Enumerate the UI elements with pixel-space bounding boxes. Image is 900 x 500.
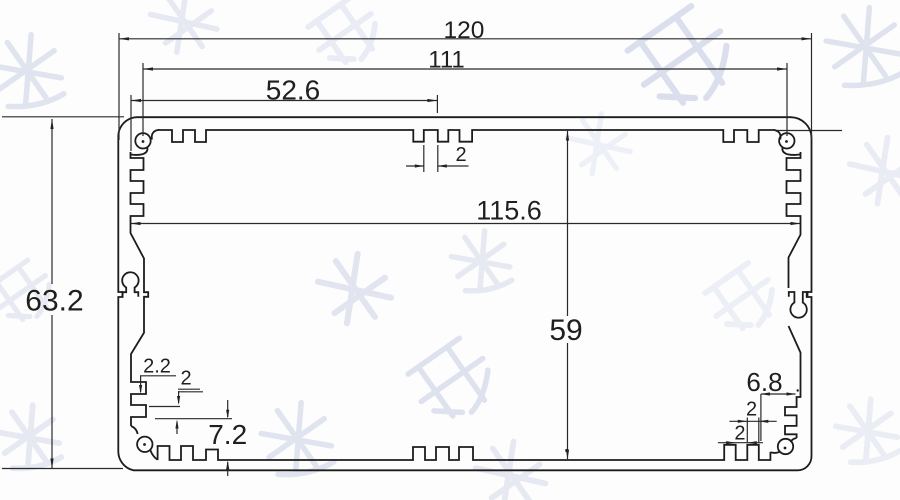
svg-text:63.2: 63.2: [25, 285, 83, 318]
svg-text:111: 111: [428, 47, 464, 74]
svg-text:6.8: 6.8: [746, 367, 782, 397]
svg-text:2: 2: [455, 144, 466, 166]
svg-text:115.6: 115.6: [476, 196, 542, 226]
svg-text:120: 120: [444, 17, 485, 44]
svg-text:2.2: 2.2: [143, 356, 171, 378]
svg-text:2: 2: [746, 399, 757, 421]
svg-text:52.6: 52.6: [266, 75, 321, 106]
svg-text:2: 2: [180, 368, 191, 390]
svg-text:59: 59: [549, 314, 582, 347]
svg-text:7.2: 7.2: [208, 419, 247, 450]
svg-text:2: 2: [734, 423, 745, 445]
